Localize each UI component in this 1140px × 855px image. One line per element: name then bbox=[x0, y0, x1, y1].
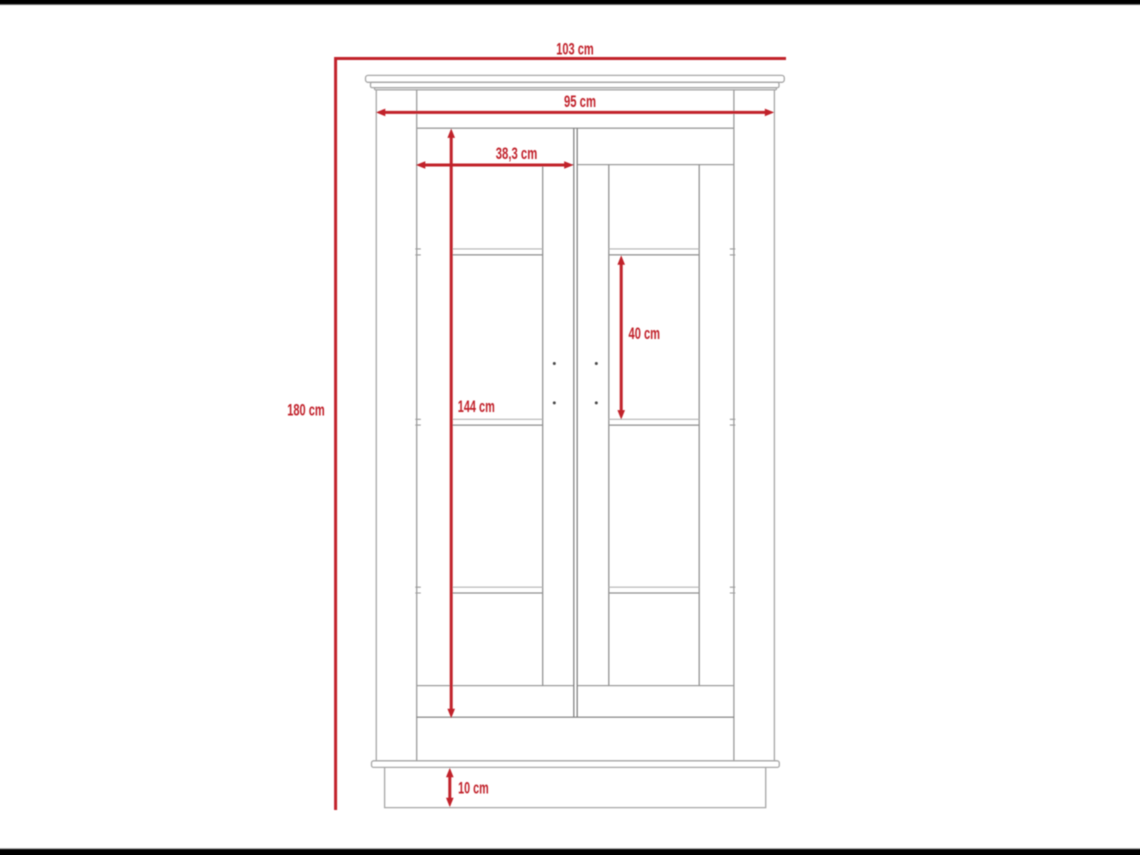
svg-text:10 cm: 10 cm bbox=[458, 780, 489, 798]
svg-text:38,3 cm: 38,3 cm bbox=[496, 145, 538, 163]
svg-text:95 cm: 95 cm bbox=[564, 93, 596, 111]
svg-text:180 cm: 180 cm bbox=[287, 402, 325, 420]
svg-text:40 cm: 40 cm bbox=[629, 325, 661, 343]
svg-text:144 cm: 144 cm bbox=[458, 398, 495, 416]
svg-text:103 cm: 103 cm bbox=[556, 41, 594, 59]
